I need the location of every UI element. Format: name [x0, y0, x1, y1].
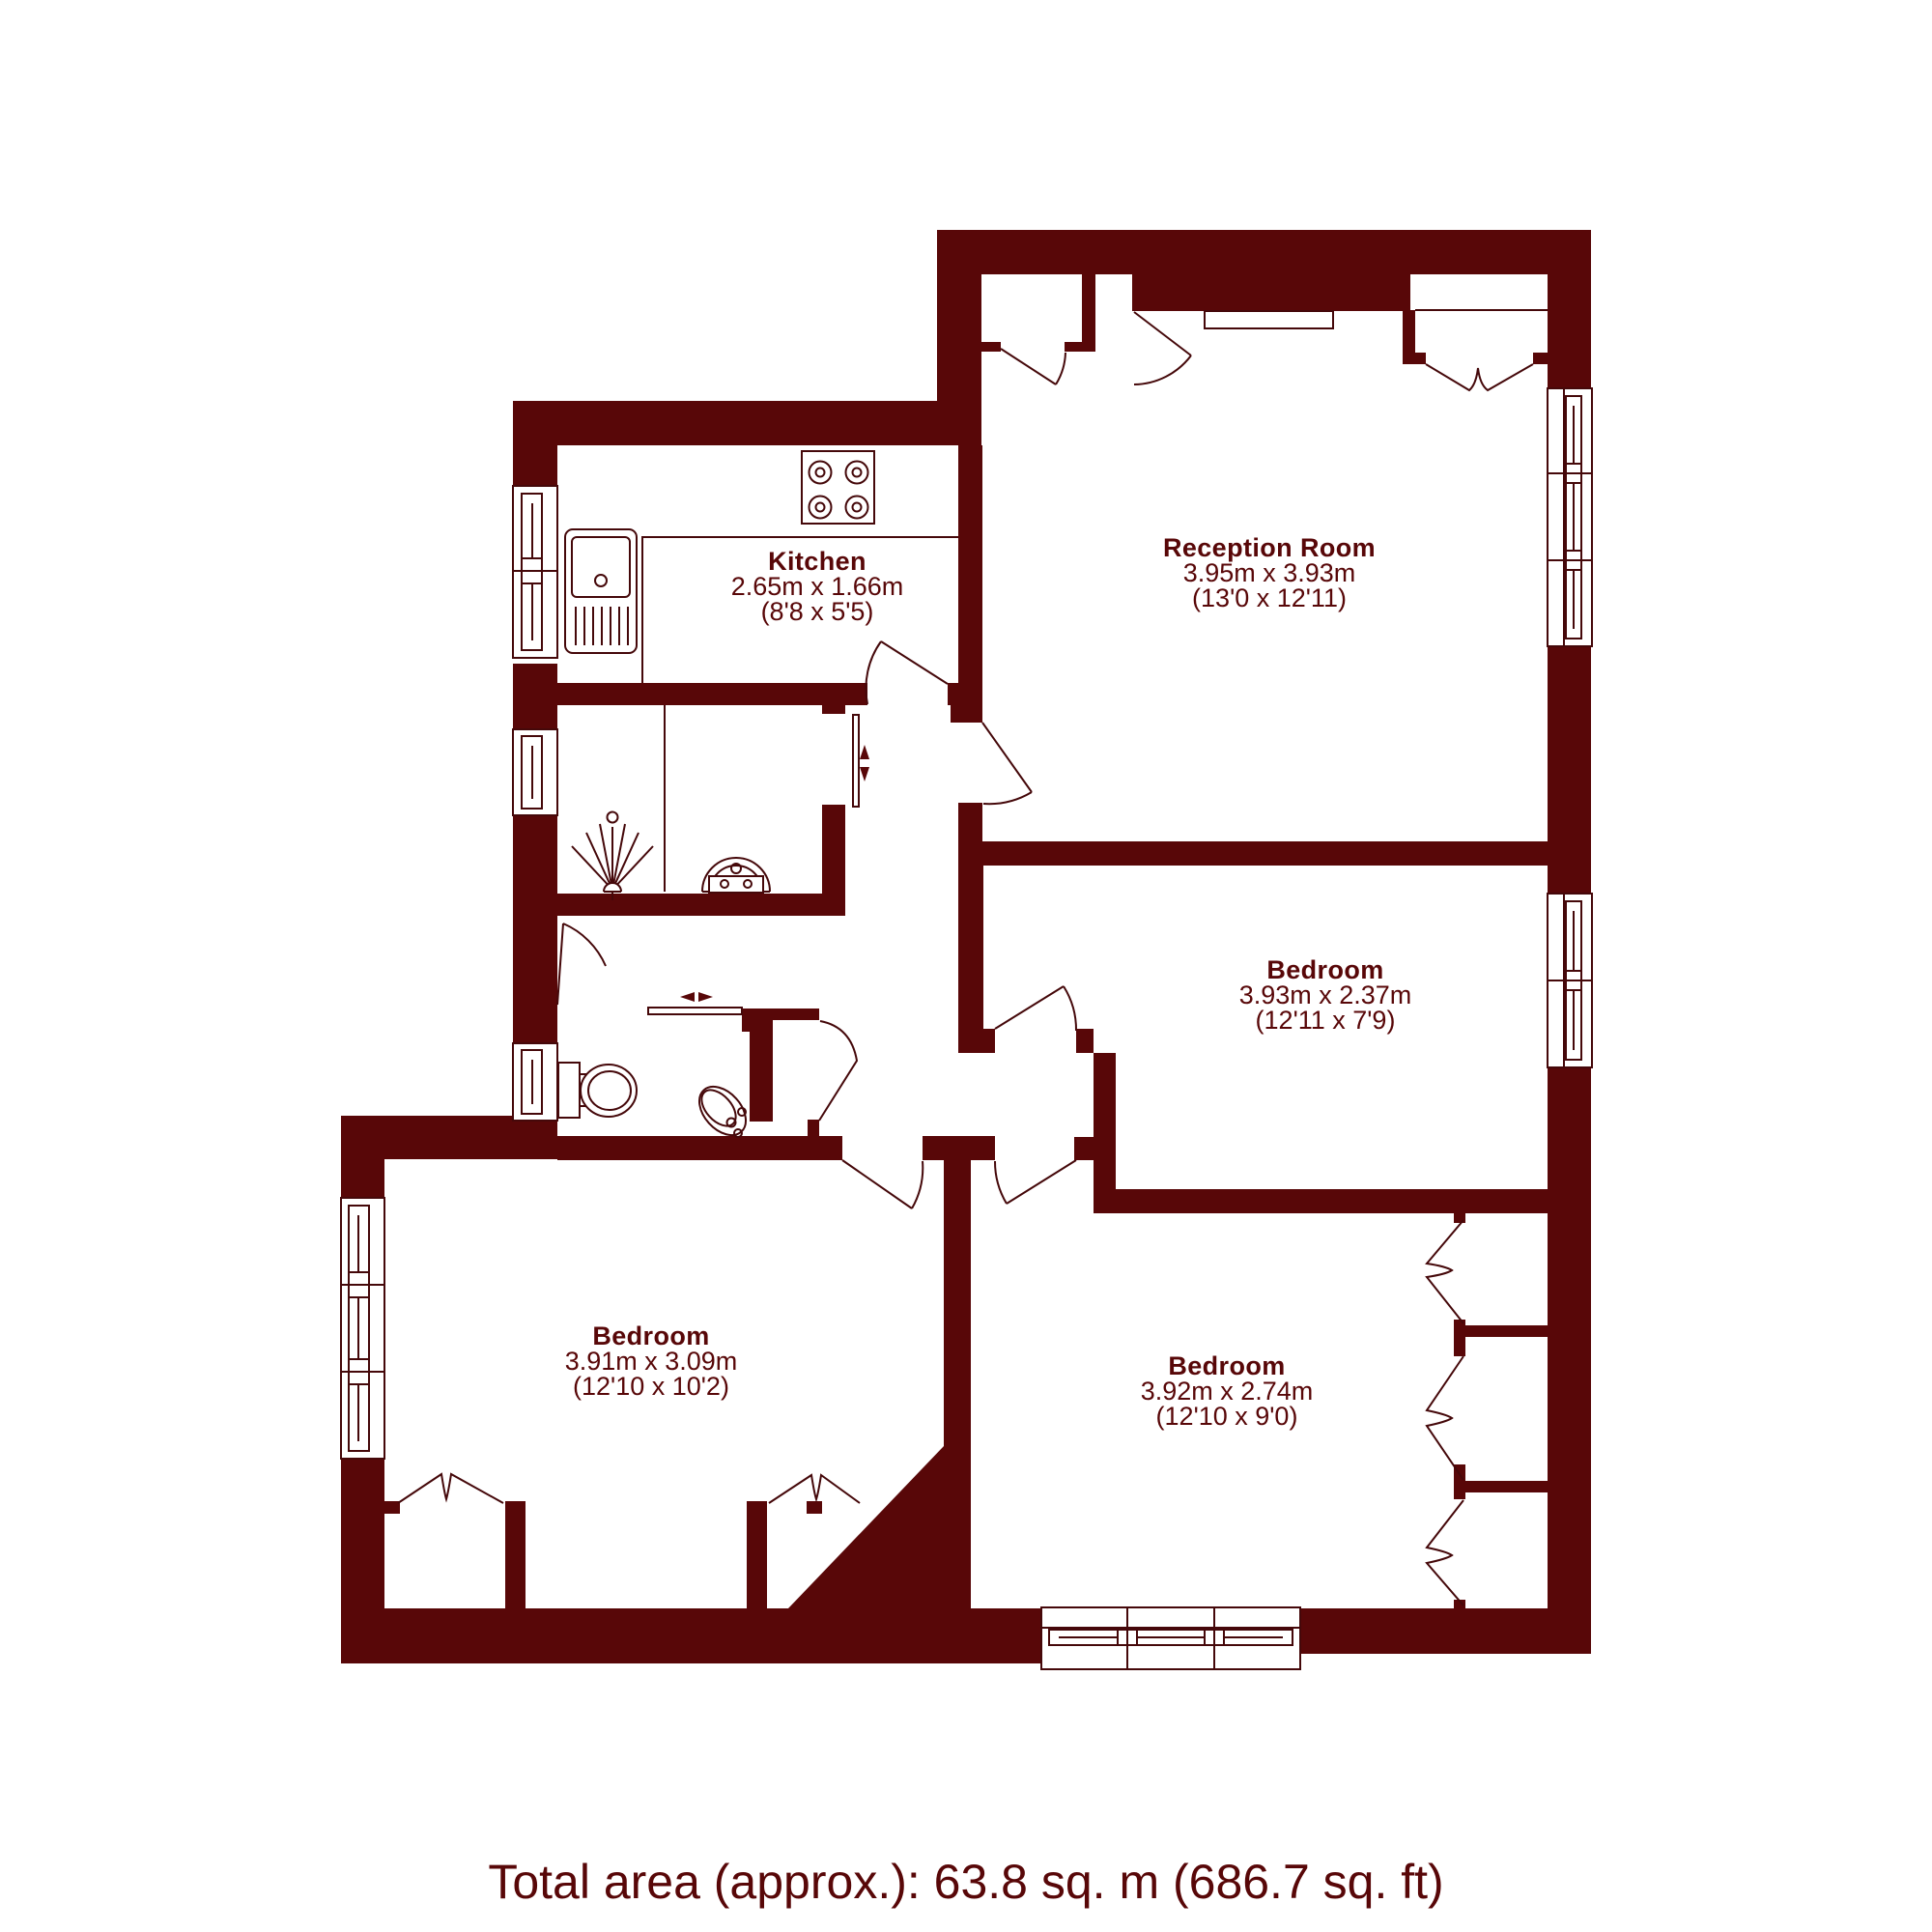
svg-text:(8'8 x 5'5): (8'8 x 5'5): [761, 597, 874, 626]
svg-text:(12'10 x 9'0): (12'10 x 9'0): [1156, 1402, 1298, 1431]
svg-text:(12'10 x 10'2): (12'10 x 10'2): [573, 1372, 729, 1401]
svg-text:Total area (approx.): 63.8 sq.: Total area (approx.): 63.8 sq. m (686.7 …: [488, 1855, 1443, 1909]
svg-text:(13'0 x 12'11): (13'0 x 12'11): [1192, 583, 1347, 612]
svg-text:(12'11 x 7'9): (12'11 x 7'9): [1256, 1006, 1396, 1035]
